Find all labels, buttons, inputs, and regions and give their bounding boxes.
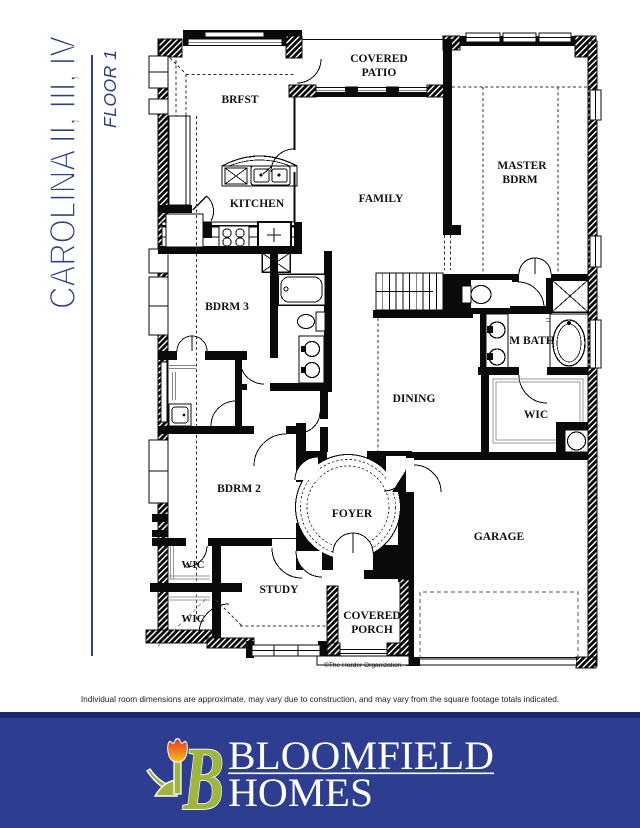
svg-text:FAMILY: FAMILY — [359, 193, 404, 205]
svg-text:BRFST: BRFST — [221, 94, 258, 106]
svg-text:WIC: WIC — [524, 409, 548, 421]
svg-text:CAROLINA II, III, IV: CAROLINA II, III, IV — [42, 35, 83, 309]
svg-text:COVERED: COVERED — [350, 53, 408, 65]
svg-text:HOMES: HOMES — [228, 770, 373, 815]
svg-text:BDRM 2: BDRM 2 — [217, 483, 261, 495]
svg-text:PORCH: PORCH — [351, 624, 393, 636]
svg-text:GARAGE: GARAGE — [474, 531, 525, 543]
svg-text:BDRM 3: BDRM 3 — [205, 301, 249, 313]
svg-text:M BATH: M BATH — [509, 335, 555, 347]
svg-text:PATIO: PATIO — [362, 67, 397, 79]
svg-text:WIC: WIC — [181, 613, 204, 625]
svg-text:FLOOR 1: FLOOR 1 — [100, 50, 120, 128]
svg-text:KITCHEN: KITCHEN — [230, 198, 285, 210]
svg-text:MASTER: MASTER — [497, 160, 547, 172]
svg-text:DINING: DINING — [393, 393, 436, 405]
svg-text:WIC: WIC — [181, 559, 204, 571]
svg-text:B: B — [182, 730, 224, 828]
svg-text:COVERED: COVERED — [343, 610, 401, 622]
svg-text:FOYER: FOYER — [332, 508, 373, 520]
svg-text:©The Harder Organization: ©The Harder Organization — [324, 661, 402, 669]
svg-text:BDRM: BDRM — [502, 174, 537, 186]
svg-text:STUDY: STUDY — [260, 584, 300, 596]
